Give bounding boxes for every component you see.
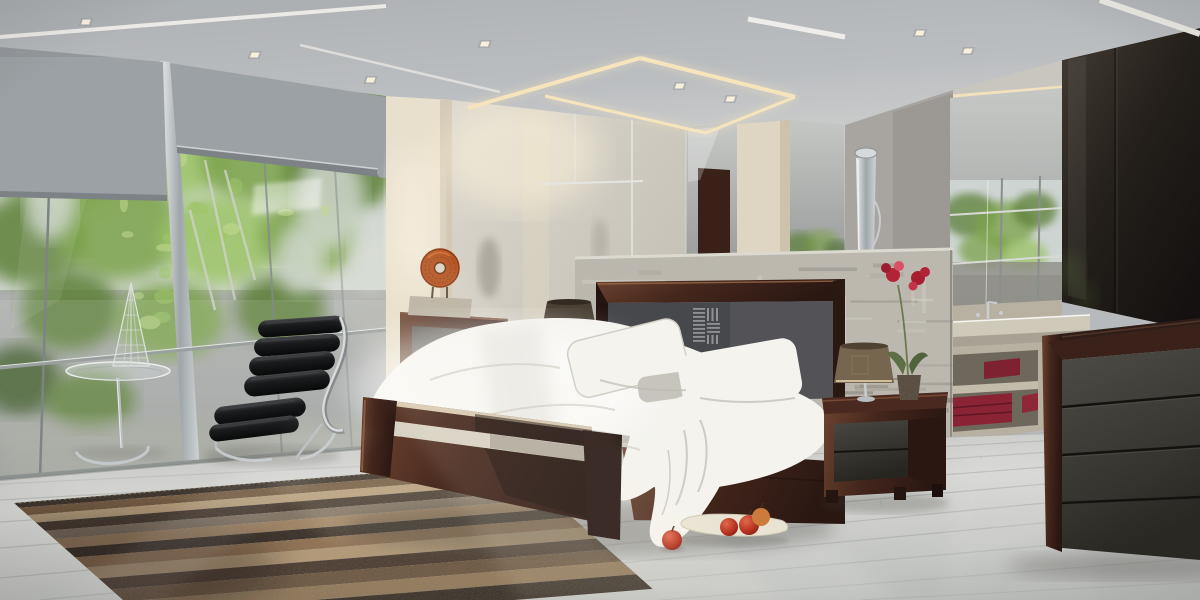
atmosphere bbox=[0, 0, 1200, 600]
scene-canvas bbox=[0, 0, 1200, 600]
vignette bbox=[0, 0, 1200, 600]
bedroom-render bbox=[0, 0, 1200, 600]
